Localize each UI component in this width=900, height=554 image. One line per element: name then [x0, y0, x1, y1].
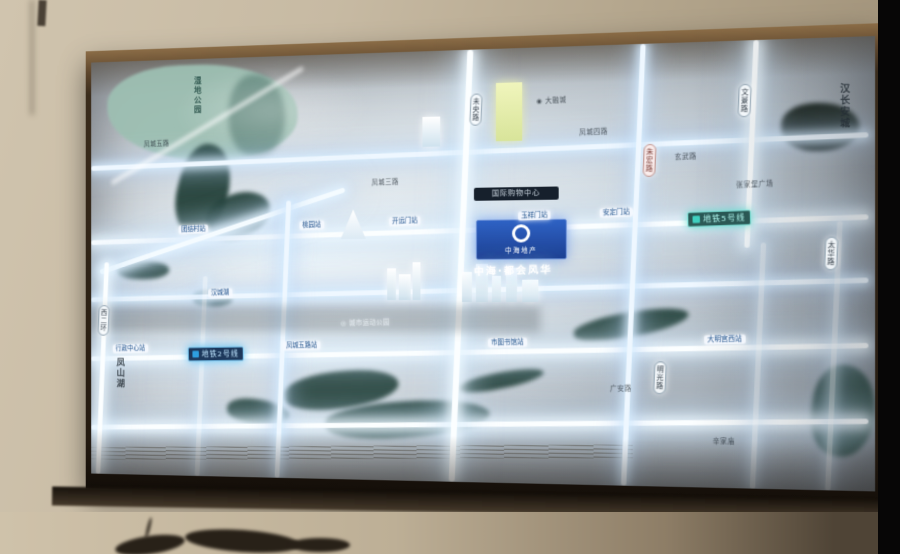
park-sports-label: ◎ 城市运动公园	[341, 319, 390, 328]
station-tuanjie-label: 团结村站	[178, 224, 208, 234]
road-fengcheng4-label: 凤城四路	[579, 128, 608, 137]
station-damingong-label: 大明宫西站	[704, 334, 745, 345]
mall-darongcheng-label: ◉ 大融城	[536, 97, 566, 106]
area-xinjiamiao-label: 辛家庙	[713, 438, 736, 446]
road-plate-mingguang-label: 明光路	[653, 361, 667, 394]
map-display-panel: 国际购物中心 中海地产 中海·都会风华 地铁5号线 地铁2号线 湿地公园凤山湖汉…	[86, 23, 880, 508]
plaza-zhangjiabao-label: 张家堡广场	[736, 181, 774, 190]
plant-leaf	[184, 526, 300, 554]
wall-crease	[30, 0, 34, 115]
plate-hanchenghu-label: 汉城湖	[208, 288, 232, 298]
road-plate-zhuhong-label: 朱宏路	[643, 144, 657, 177]
area-guangan-label: 广安路	[610, 385, 632, 393]
road-fengcheng5-label: 凤城五路	[144, 140, 170, 148]
road-fengcheng3-label: 凤城三路	[372, 179, 399, 188]
station-taoyuan-label: 桃园站	[299, 220, 324, 230]
station-kaiyuanmen-label: 开远门站	[389, 216, 421, 227]
station-xingzheng-label: 行政中心站	[113, 344, 148, 354]
road-plate-xierhuan-label: 西二环	[98, 305, 110, 336]
road-plate-weiyang-label: 未央路	[469, 94, 482, 126]
station-yuxiangmen-label: 玉祥门站	[518, 210, 551, 221]
road-plate-taihua-label: 太华路	[824, 236, 839, 270]
station-tushuguan-label: 市图书馆站	[488, 338, 527, 348]
map-screen: 国际购物中心 中海地产 中海·都会风华 地铁5号线 地铁2号线 湿地公园凤山湖汉…	[91, 36, 875, 491]
heritage-name-label: 汉长安城	[838, 83, 849, 129]
station-andingmen-label: 安定门站	[600, 207, 633, 218]
map-labels: 湿地公园凤山湖汉长安城未央路文景路朱宏路太华路明光路西二环团结村站桃园站开远门站…	[91, 36, 875, 491]
photo-of-map-display: 国际购物中心 中海地产 中海·都会风华 地铁5号线 地铁2号线 湿地公园凤山湖汉…	[0, 0, 900, 554]
lake-name-label: 湿地公园	[193, 76, 202, 115]
plant-silhouette	[95, 526, 365, 554]
district-name-label: 凤山湖	[115, 358, 124, 390]
photo-right-black-edge	[878, 0, 900, 554]
station-fengwu-label: 凤城五路站	[283, 341, 320, 351]
plant-leaf	[290, 538, 350, 552]
road-xuanwu-label: 玄武路	[675, 153, 697, 162]
plant-leaf	[114, 531, 186, 554]
wall-corner-mark	[37, 0, 46, 26]
road-plate-wenjing-label: 文景路	[737, 84, 751, 117]
